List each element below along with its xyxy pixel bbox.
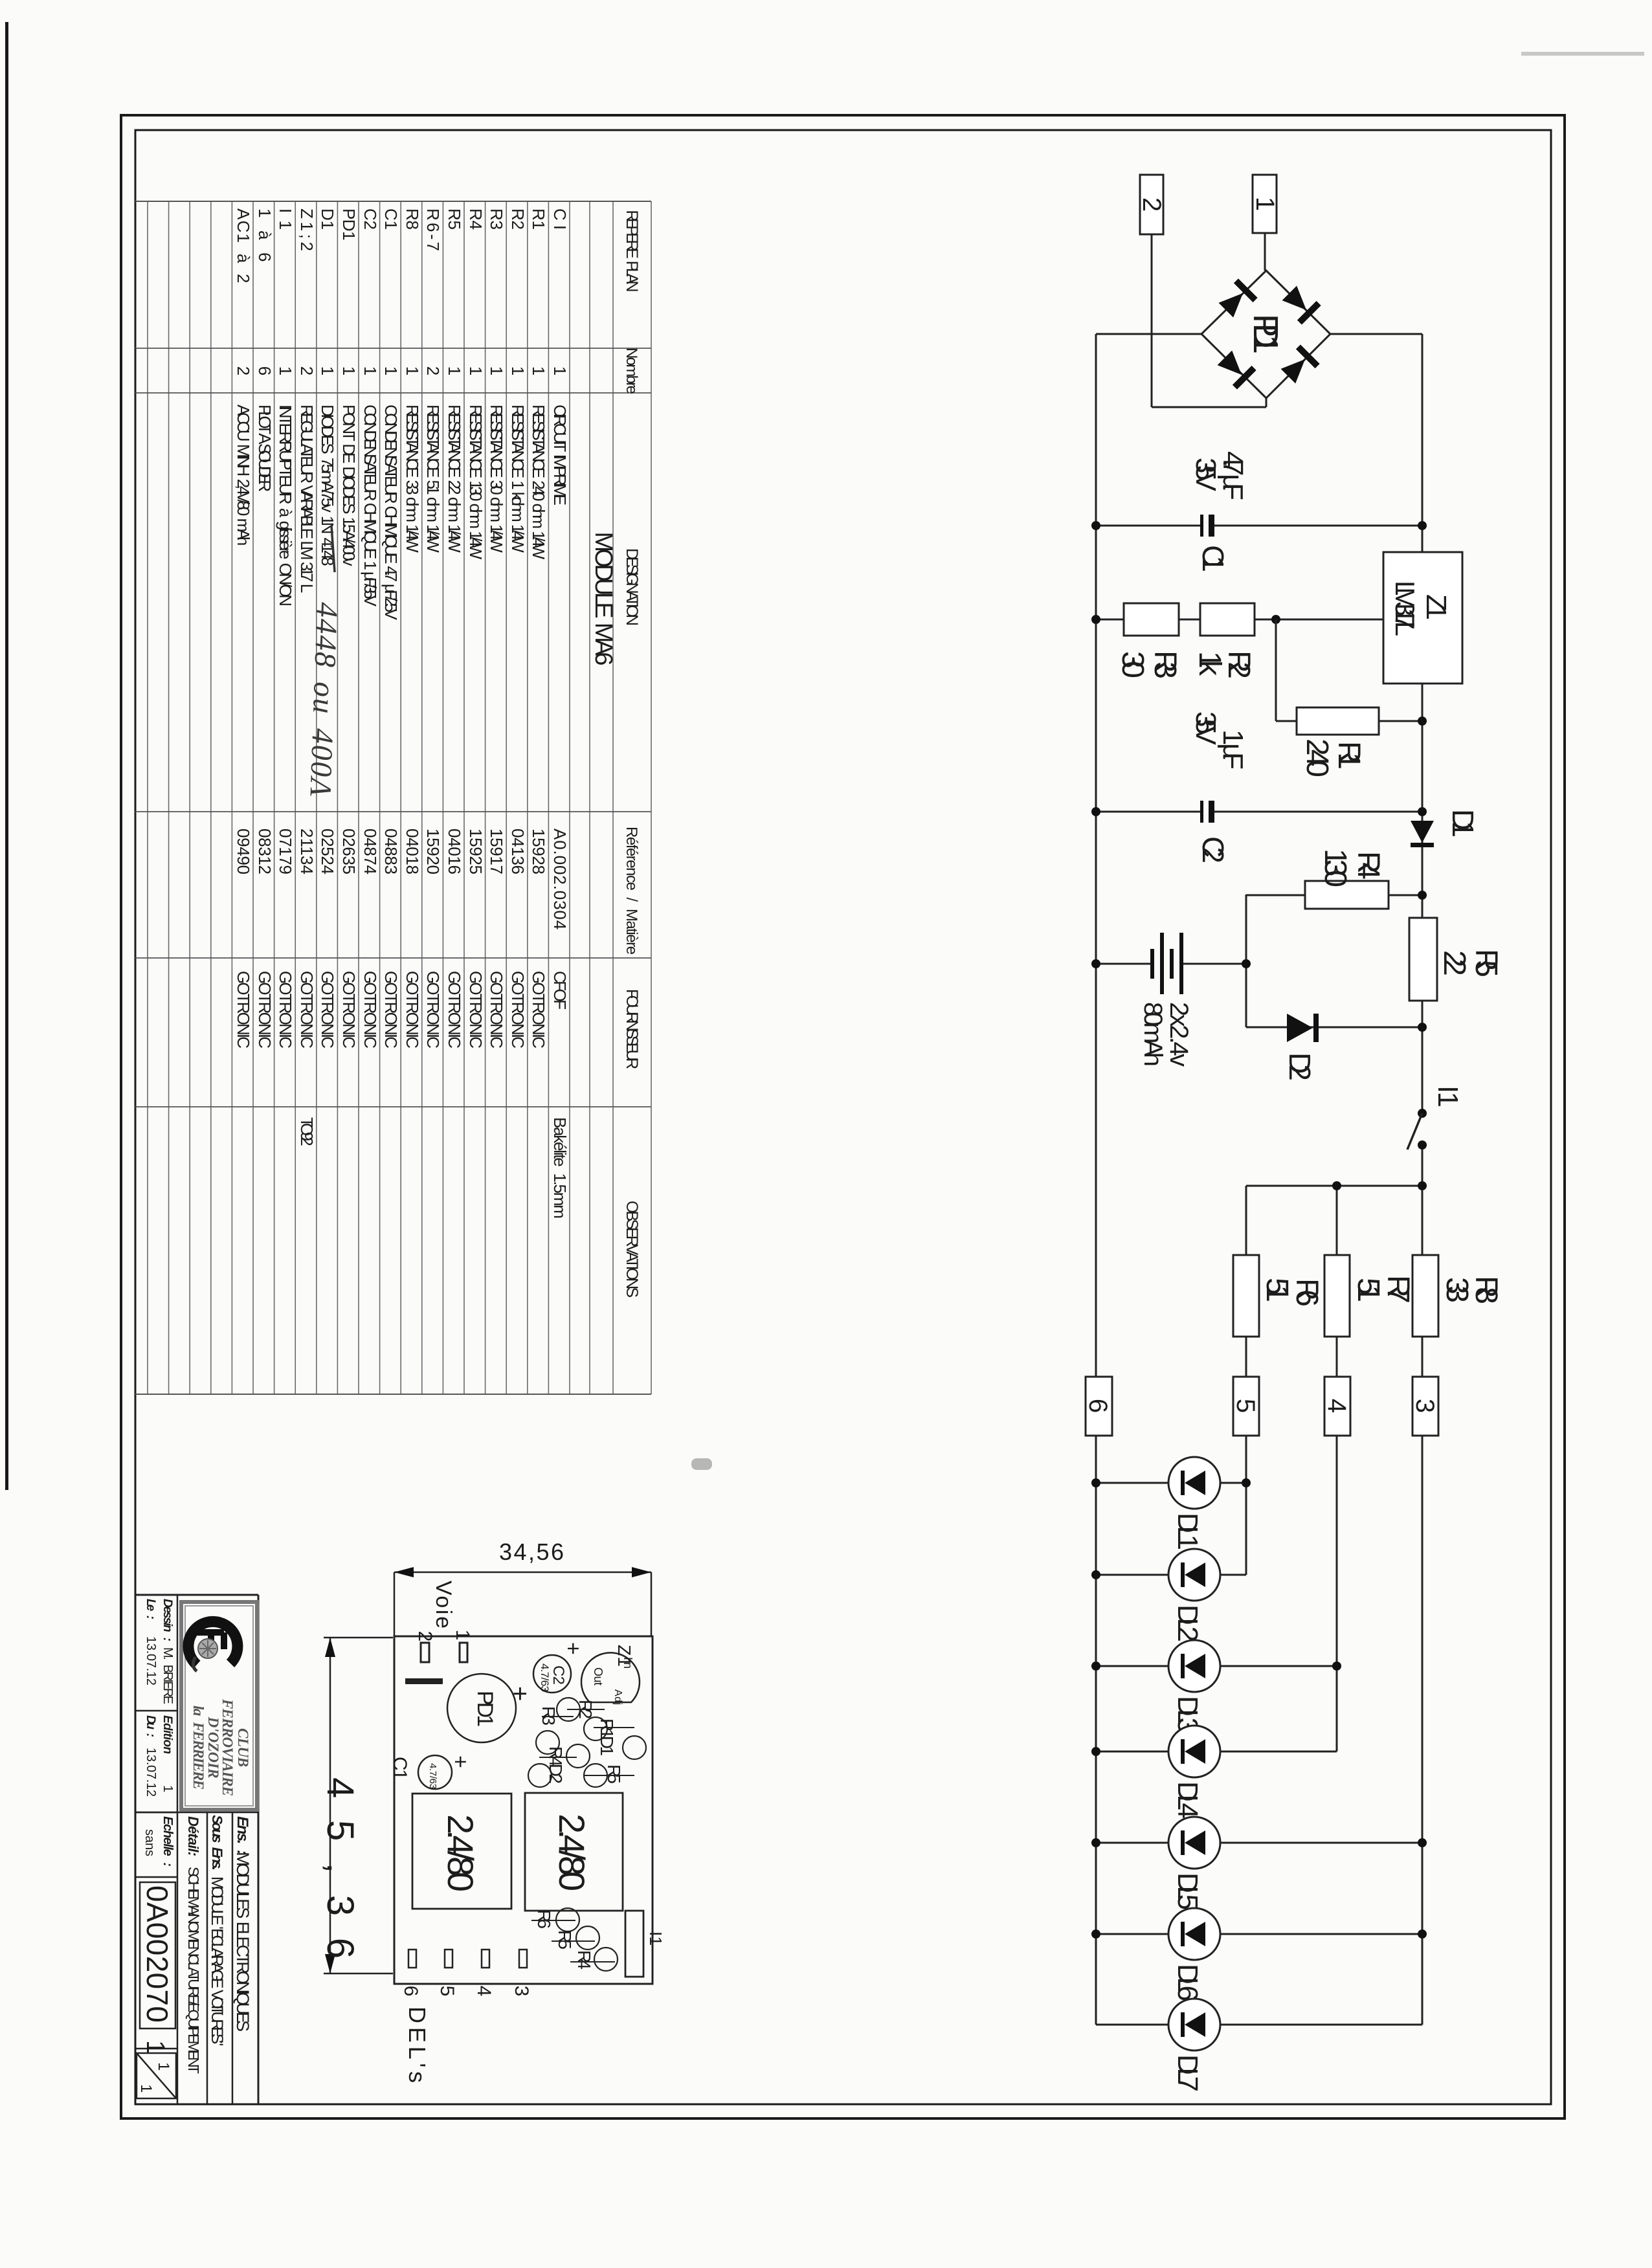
svg-text:R5: R5	[445, 208, 464, 230]
svg-text:2: 2	[414, 1631, 436, 1642]
svg-text:DESIGNATION: DESIGNATION	[623, 548, 641, 626]
svg-text:GOTRONIC: GOTRONIC	[423, 971, 443, 1049]
svg-text:30: 30	[1115, 651, 1150, 678]
svg-text:PD1: PD1	[339, 208, 359, 241]
svg-text:1: 1	[361, 366, 380, 375]
svg-text:FOURNISSEUR: FOURNISSEUR	[623, 989, 641, 1069]
svg-text:DL5: DL5	[1172, 1873, 1203, 1910]
svg-text:GOTRONIC: GOTRONIC	[445, 971, 464, 1049]
svg-text:RESISTANCE 30 ohm 1/4W: RESISTANCE 30 ohm 1/4W	[487, 405, 506, 553]
svg-text:R6-7: R6-7	[423, 208, 443, 251]
svg-text:Dessin :: Dessin :	[161, 1599, 174, 1641]
svg-text:2: 2	[1137, 197, 1166, 212]
svg-text:LM317L: LM317L	[1390, 581, 1420, 636]
svg-text:240: 240	[1300, 739, 1334, 777]
svg-text:1k: 1k	[1192, 651, 1227, 676]
svg-text:R4: R4	[574, 1950, 594, 1970]
svg-text:Nombre: Nombre	[623, 348, 640, 394]
svg-text:C1: C1	[389, 1757, 410, 1780]
svg-text:la FERRIERE: la FERRIERE	[190, 1706, 206, 1790]
svg-text:PD1: PD1	[1246, 314, 1285, 354]
svg-text:Le :: Le :	[144, 1599, 157, 1619]
svg-text:3: 3	[511, 1986, 532, 1997]
svg-text:GOTRONIC: GOTRONIC	[508, 971, 528, 1049]
svg-text:1: 1	[487, 366, 506, 375]
svg-text:GOTRONIC: GOTRONIC	[361, 971, 380, 1049]
svg-text:CLUB: CLUB	[235, 1728, 251, 1767]
svg-text:DL1: DL1	[1172, 1513, 1203, 1550]
svg-text:SCHEMA/NOMENCLATURE/EQUIPEMENT: SCHEMA/NOMENCLATURE/EQUIPEMENT	[185, 1867, 202, 2074]
svg-text:15920: 15920	[423, 828, 443, 874]
svg-text:DEL's: DEL's	[404, 2007, 430, 2083]
svg-text:35V: 35V	[1190, 458, 1222, 492]
svg-text:R3: R3	[1148, 650, 1182, 679]
svg-text:R6: R6	[534, 1909, 554, 1929]
svg-text:I1: I1	[1432, 1085, 1464, 1107]
svg-text:1 à 6: 1 à 6	[255, 208, 274, 262]
svg-text:Référence / Matière: Référence / Matière	[623, 827, 640, 955]
svg-text:5: 5	[436, 1986, 458, 1997]
svg-text:MODULE "ECLAIRAGE VOITURES": MODULE "ECLAIRAGE VOITURES"	[208, 1876, 226, 2046]
svg-text:Z1: Z1	[1420, 594, 1452, 620]
svg-text:RESISTANCE 22 ohm 1/4W: RESISTANCE 22 ohm 1/4W	[445, 405, 464, 553]
svg-text:Edition: Edition	[161, 1715, 174, 1754]
svg-text:CIRCUIT IMPRIME: CIRCUIT IMPRIME	[550, 405, 570, 506]
svg-text:Ens. :: Ens. :	[234, 1816, 251, 1855]
svg-text:2.4/80: 2.4/80	[440, 1814, 481, 1892]
svg-text:sans: sans	[142, 1829, 157, 1856]
svg-text:GOTRONIC: GOTRONIC	[255, 971, 274, 1049]
svg-text:1: 1	[529, 366, 548, 375]
svg-text:REGULATEUR VARIABLE LM 317 L: REGULATEUR VARIABLE LM 317 L	[297, 405, 317, 593]
svg-text:04874: 04874	[361, 828, 380, 874]
svg-text:M. BRIERE: M. BRIERE	[161, 1647, 175, 1704]
svg-text:TO92: TO92	[297, 1117, 317, 1146]
svg-text:AC1 à 2: AC1 à 2	[234, 208, 253, 283]
svg-text:ACCU MINH 2,4V/80 mAh: ACCU MINH 2,4V/80 mAh	[234, 405, 253, 546]
svg-text:MODULE MA6: MODULE MA6	[590, 532, 617, 666]
svg-text:51: 51	[1351, 1278, 1385, 1302]
svg-text:GOTRONIC: GOTRONIC	[318, 971, 337, 1049]
svg-text:C2: C2	[361, 208, 380, 230]
svg-text:1: 1	[161, 1785, 175, 1792]
svg-text:RESISTANCE 51 ohm 1/4W: RESISTANCE 51 ohm 1/4W	[423, 405, 443, 553]
svg-text:1: 1	[318, 366, 337, 375]
svg-text:R4D2: R4D2	[546, 1746, 566, 1784]
svg-text:51: 51	[1260, 1278, 1294, 1302]
svg-text:13.07.12: 13.07.12	[144, 1748, 158, 1797]
svg-text:R1: R1	[529, 208, 548, 230]
svg-text:07179: 07179	[276, 828, 295, 874]
svg-text:130: 130	[1318, 849, 1352, 887]
svg-text:R5: R5	[604, 1764, 624, 1784]
svg-text:02635: 02635	[339, 828, 359, 874]
svg-text:Bakélite 1.5mm: Bakélite 1.5mm	[550, 1117, 570, 1219]
svg-text:1: 1	[445, 366, 464, 375]
svg-text:6: 6	[255, 366, 274, 375]
svg-text:R5: R5	[555, 1930, 575, 1950]
svg-text:21134: 21134	[297, 828, 317, 874]
svg-text:1: 1	[155, 2062, 172, 2071]
svg-text:D1: D1	[318, 208, 337, 230]
svg-text:R5: R5	[1469, 949, 1503, 977]
svg-text:02524: 02524	[318, 828, 337, 874]
svg-text:R4: R4	[1351, 851, 1385, 880]
svg-text:1: 1	[550, 366, 570, 375]
svg-text:PONT DE DIODES 1.5A/400v: PONT DE DIODES 1.5A/400v	[339, 405, 359, 566]
svg-text:Echelle :: Echelle :	[161, 1816, 175, 1867]
svg-text:13.07.12: 13.07.12	[144, 1636, 158, 1685]
svg-text:1: 1	[466, 366, 486, 375]
svg-text:09490: 09490	[234, 828, 253, 874]
svg-text:I1: I1	[646, 1931, 665, 1946]
svg-text:1: 1	[137, 2084, 155, 2093]
svg-text:DIODES 75mA/75v 1N 4148: DIODES 75mA/75v 1N 4148	[318, 405, 337, 566]
svg-text:2x2.4v: 2x2.4v	[1165, 1002, 1193, 1067]
svg-text:CI: CI	[550, 208, 570, 230]
svg-text:CONDENSATEUR CHIMIQUE 1 µF/35V: CONDENSATEUR CHIMIQUE 1 µF/35V	[361, 405, 380, 607]
svg-text:1: 1	[403, 366, 422, 375]
svg-text:GOTRONIC: GOTRONIC	[297, 971, 317, 1049]
svg-text:+: +	[448, 1755, 473, 1768]
svg-text:04883: 04883	[381, 828, 401, 874]
svg-text:PD1: PD1	[473, 1691, 497, 1727]
svg-text:OBSERVATIONS: OBSERVATIONS	[623, 1201, 641, 1298]
svg-text:4.7/63: 4.7/63	[427, 1763, 438, 1789]
svg-text:GOTRONIC: GOTRONIC	[234, 971, 253, 1049]
svg-text:DL2: DL2	[1172, 1605, 1203, 1642]
svg-text:Détail:: Détail:	[185, 1816, 201, 1856]
svg-text:4.7/63: 4.7/63	[539, 1663, 551, 1692]
svg-text:GOTRONIC: GOTRONIC	[339, 971, 359, 1049]
svg-text:Out: Out	[592, 1667, 605, 1685]
svg-text:MODULES ELECTRONIQUES: MODULES ELECTRONIQUES	[233, 1852, 252, 2032]
svg-text:GOTRONIC: GOTRONIC	[276, 971, 295, 1049]
svg-text:2: 2	[423, 366, 443, 375]
svg-text:RESISTANCE 240 ohm 1/4W: RESISTANCE 240 ohm 1/4W	[529, 405, 548, 560]
svg-text:INTERRUPTEUR à glissière ON/ON: INTERRUPTEUR à glissière ON/ON	[276, 405, 295, 606]
svg-text:04018: 04018	[403, 828, 422, 874]
svg-text:C1: C1	[381, 208, 401, 230]
svg-text:1: 1	[276, 366, 295, 375]
svg-text:GOTRONIC: GOTRONIC	[529, 971, 548, 1049]
svg-text:GOTRONIC: GOTRONIC	[487, 971, 506, 1049]
svg-text:34,56: 34,56	[499, 1539, 564, 1565]
svg-text:CFOF: CFOF	[550, 971, 570, 1010]
svg-text:1: 1	[339, 366, 359, 375]
svg-text:4448 ou 400Λ: 4448 ou 400Λ	[304, 602, 344, 797]
svg-text:15928: 15928	[529, 828, 548, 874]
svg-text:15925: 15925	[466, 828, 486, 874]
svg-text:C2: C2	[550, 1665, 567, 1685]
svg-text:A0.002.0304: A0.002.0304	[550, 828, 570, 929]
svg-text:RESISTANCE 33 ohm 1/4W: RESISTANCE 33 ohm 1/4W	[403, 405, 422, 553]
svg-text:+: +	[506, 1686, 534, 1701]
svg-text:R4: R4	[466, 208, 486, 230]
svg-text:08312: 08312	[255, 828, 274, 874]
svg-text:1: 1	[1251, 197, 1279, 211]
svg-text:R8: R8	[403, 208, 422, 230]
svg-text:I1: I1	[276, 208, 295, 230]
svg-text:2: 2	[297, 366, 317, 375]
svg-text:DL4: DL4	[1172, 1781, 1203, 1819]
svg-text:PLOT A SOUDER: PLOT A SOUDER	[255, 405, 274, 492]
svg-text:04016: 04016	[445, 828, 464, 874]
svg-text:1: 1	[381, 366, 401, 375]
svg-text:Sous Ens.: Sous Ens.	[209, 1815, 225, 1871]
svg-text:3: 3	[1411, 1399, 1439, 1413]
svg-text:6: 6	[1084, 1399, 1112, 1413]
svg-text:Voie: Voie	[431, 1581, 456, 1629]
svg-text:D2: D2	[1283, 1052, 1317, 1081]
svg-text:35V: 35V	[1190, 711, 1222, 746]
svg-text:+: +	[561, 1642, 585, 1655]
svg-text:1: 1	[452, 1630, 473, 1641]
svg-text:2: 2	[234, 366, 253, 375]
svg-text:GOTRONIC: GOTRONIC	[403, 971, 422, 1049]
svg-text:RESISTANCE 1 kohm 1/4W: RESISTANCE 1 kohm 1/4W	[508, 405, 528, 553]
svg-text:22: 22	[1437, 950, 1471, 976]
svg-text:0A002070: 0A002070	[140, 1885, 174, 2023]
svg-text:D'OZOIR: D'OZOIR	[205, 1717, 221, 1779]
svg-text:R1: R1	[1332, 741, 1366, 770]
svg-text:C1: C1	[1196, 545, 1230, 572]
svg-text:Z1;2: Z1;2	[297, 208, 317, 251]
svg-text:DL7: DL7	[1172, 2054, 1203, 2092]
svg-text:80mAh: 80mAh	[1139, 1002, 1167, 1067]
svg-text:2.4/80: 2.4/80	[552, 1814, 592, 1891]
svg-text:R1D1: R1D1	[597, 1718, 617, 1756]
svg-text:04136: 04136	[508, 828, 528, 874]
svg-text:15917: 15917	[487, 828, 506, 874]
svg-text:Adj: Adj	[612, 1689, 623, 1705]
svg-text:6: 6	[400, 1986, 421, 1997]
svg-text:CONDENSATEUR CHIMIQUE 4.7 µF/2: CONDENSATEUR CHIMIQUE 4.7 µF/25V	[381, 405, 401, 620]
svg-text:C2: C2	[1196, 836, 1230, 863]
svg-text:REPERE PLAN: REPERE PLAN	[623, 210, 641, 293]
svg-text:4: 4	[473, 1986, 495, 1997]
svg-text:4: 4	[1323, 1399, 1351, 1413]
svg-text:45,36: 45,36	[319, 1777, 361, 1959]
svg-text:DL6: DL6	[1172, 1964, 1203, 2001]
svg-text:5: 5	[1231, 1399, 1260, 1413]
svg-text:33: 33	[1440, 1277, 1474, 1303]
svg-text:GOTRONIC: GOTRONIC	[381, 971, 401, 1049]
svg-text:RESISTANCE 130 ohm 1/4W: RESISTANCE 130 ohm 1/4W	[466, 405, 486, 560]
svg-text:1: 1	[508, 366, 528, 375]
svg-text:In: In	[621, 1657, 634, 1669]
svg-text:GOTRONIC: GOTRONIC	[466, 971, 486, 1049]
svg-text:R2: R2	[508, 208, 528, 230]
svg-text:R3: R3	[487, 208, 506, 230]
svg-text:Du :: Du :	[144, 1715, 157, 1737]
svg-text:D1: D1	[1446, 809, 1480, 838]
